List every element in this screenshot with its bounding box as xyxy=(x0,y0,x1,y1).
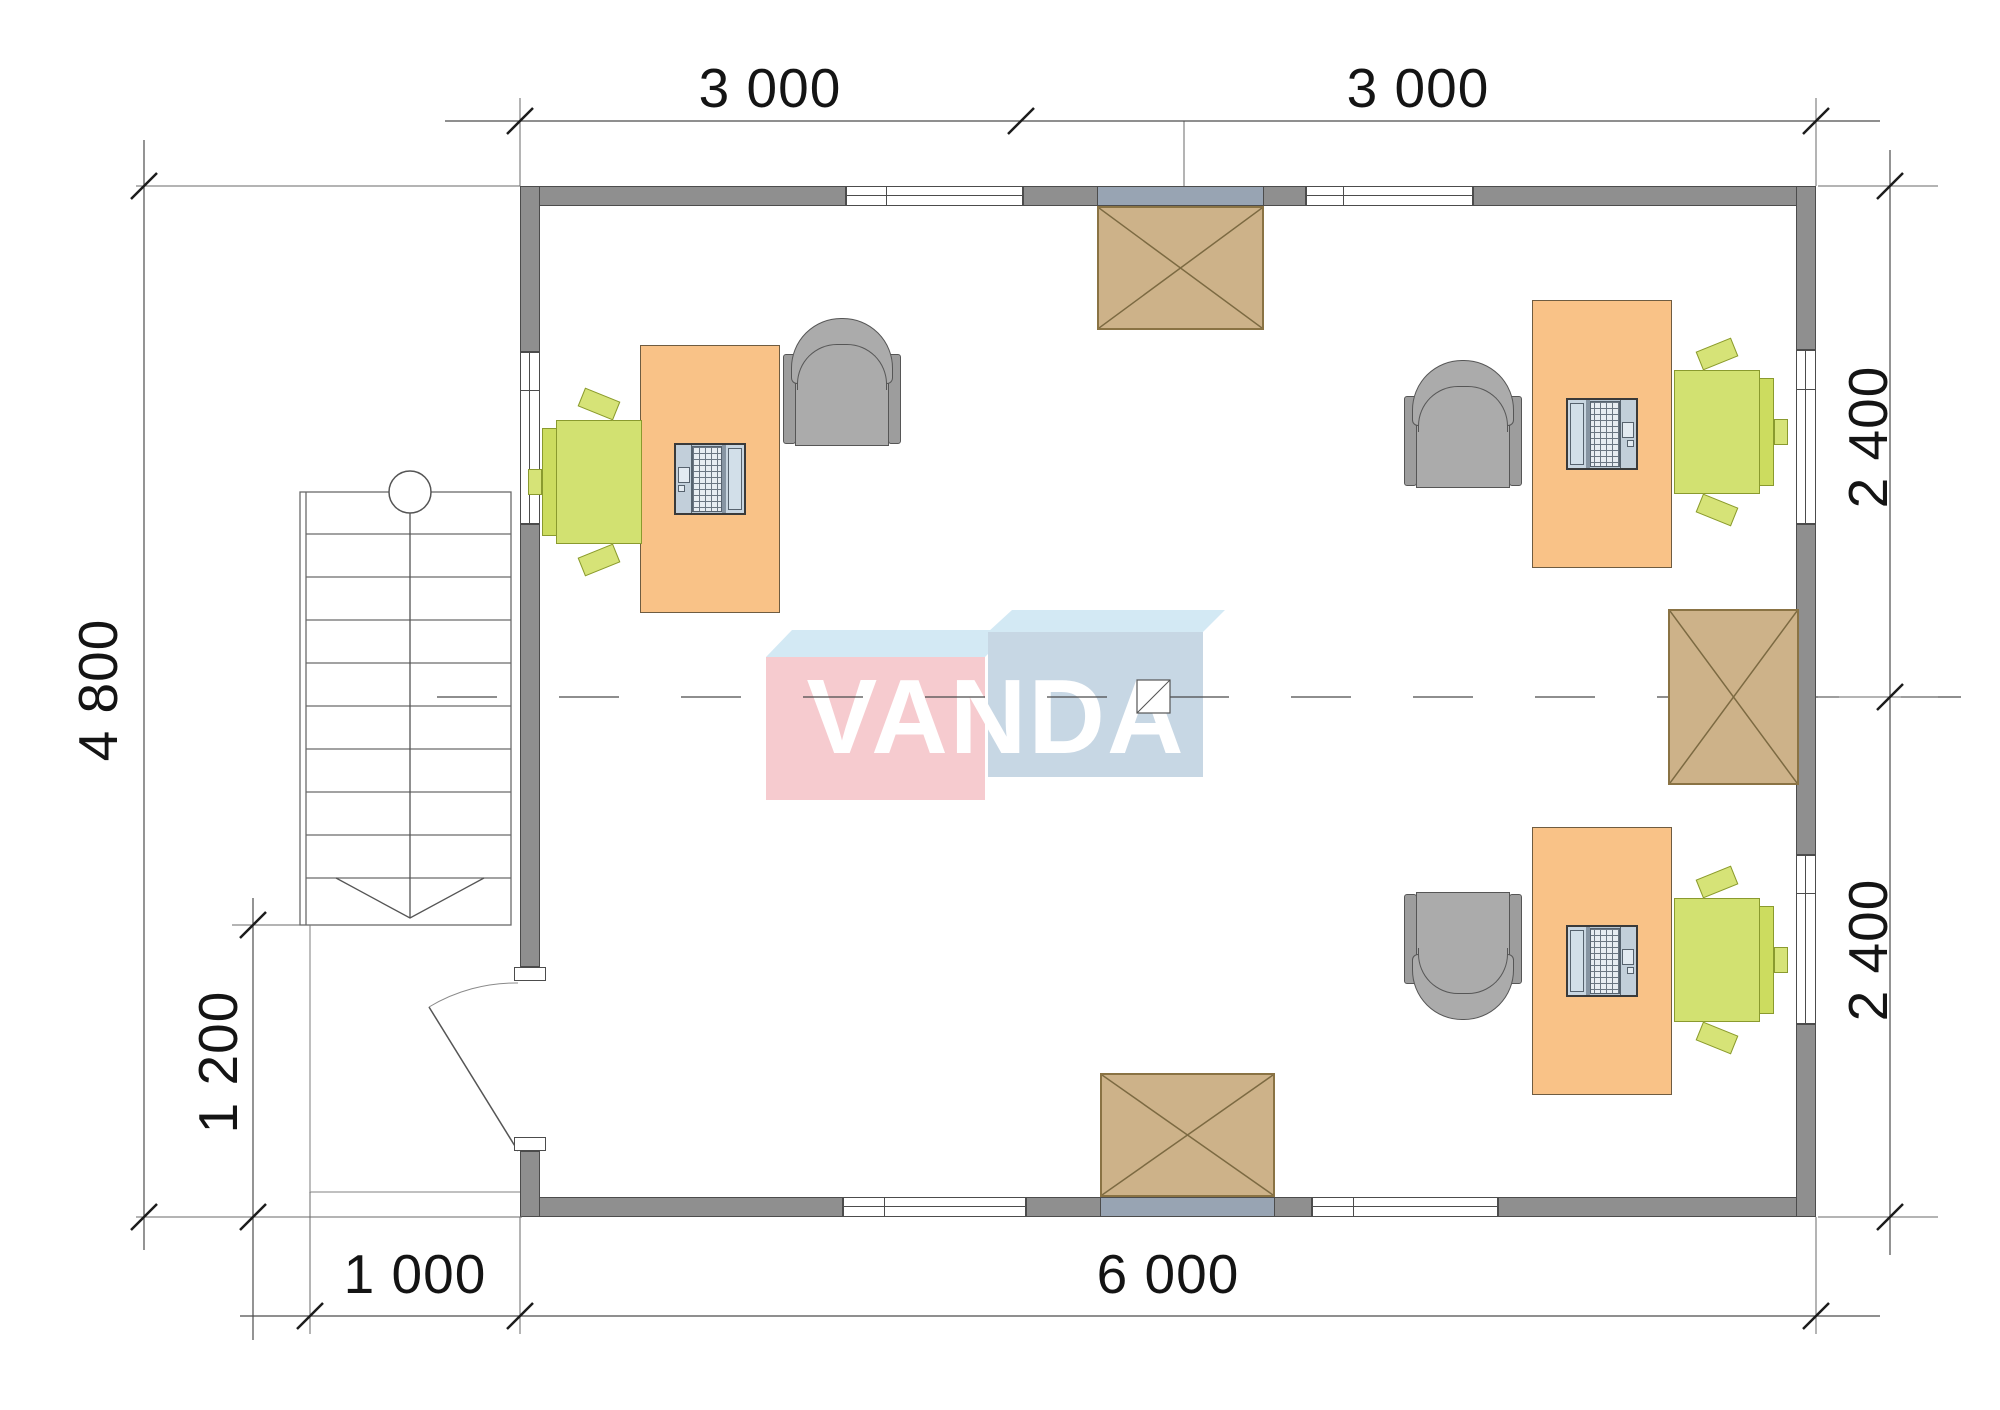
dim-label-bottom-width: 6 000 xyxy=(1058,1246,1278,1302)
floor-plan-canvas: VANDA xyxy=(0,0,2000,1410)
dim-label-porch-height: 1 200 xyxy=(190,952,246,1172)
dim-label-porch-width: 1 000 xyxy=(305,1246,525,1302)
dim-label-right-upper: 2 400 xyxy=(1840,327,1896,547)
dim-label-right-lower: 2 400 xyxy=(1840,840,1896,1060)
dimension-linework xyxy=(0,0,2000,1410)
witness-lines xyxy=(136,98,1938,1334)
dimension-lines xyxy=(144,121,1890,1340)
dim-label-top-right-span: 3 000 xyxy=(1308,60,1528,116)
dim-label-top-left-span: 3 000 xyxy=(660,60,880,116)
dimension-ticks xyxy=(131,108,1903,1329)
dim-label-left-height: 4 800 xyxy=(70,580,126,800)
